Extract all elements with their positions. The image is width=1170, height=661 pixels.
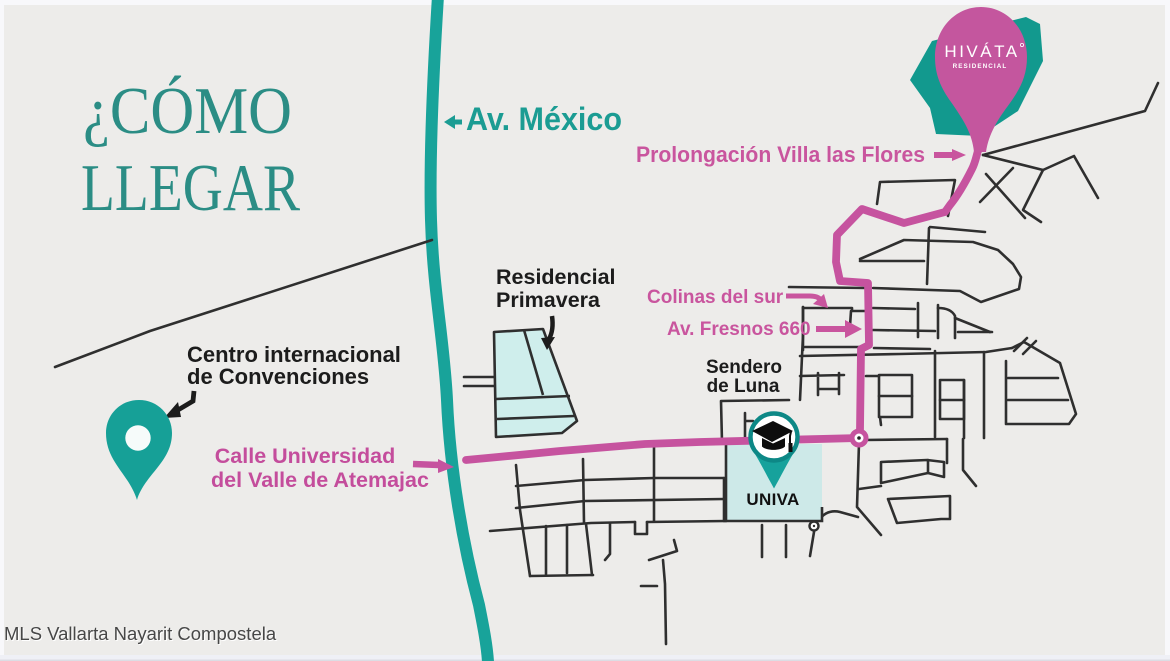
svg-text:Av. México: Av. México	[466, 101, 622, 137]
svg-text:Prolongación Villa las Flores: Prolongación Villa las Flores	[636, 142, 925, 167]
svg-text:Primavera: Primavera	[496, 288, 601, 312]
svg-text:de Luna: de Luna	[707, 376, 780, 397]
svg-text:Residencial: Residencial	[496, 265, 616, 289]
svg-text:LLEGAR: LLEGAR	[81, 151, 300, 225]
svg-text:de Convenciones: de Convenciones	[187, 364, 369, 389]
svg-text:UNIVA: UNIVA	[746, 490, 799, 509]
svg-text:Colinas del sur: Colinas del sur	[647, 287, 784, 308]
svg-text:RESIDENCIAL: RESIDENCIAL	[953, 63, 1008, 70]
svg-text:¿CÓMO: ¿CÓMO	[83, 74, 292, 148]
svg-text:HIVÁTA: HIVÁTA	[944, 42, 1019, 61]
svg-text:Calle Universidad: Calle Universidad	[215, 444, 395, 468]
svg-text:Sendero: Sendero	[706, 357, 782, 378]
svg-text:MLS Vallarta Nayarit Compostel: MLS Vallarta Nayarit Compostela	[4, 623, 277, 644]
svg-text:del Valle de Atemajac: del Valle de Atemajac	[211, 468, 429, 492]
svg-text:Av. Fresnos 660: Av. Fresnos 660	[667, 319, 811, 340]
